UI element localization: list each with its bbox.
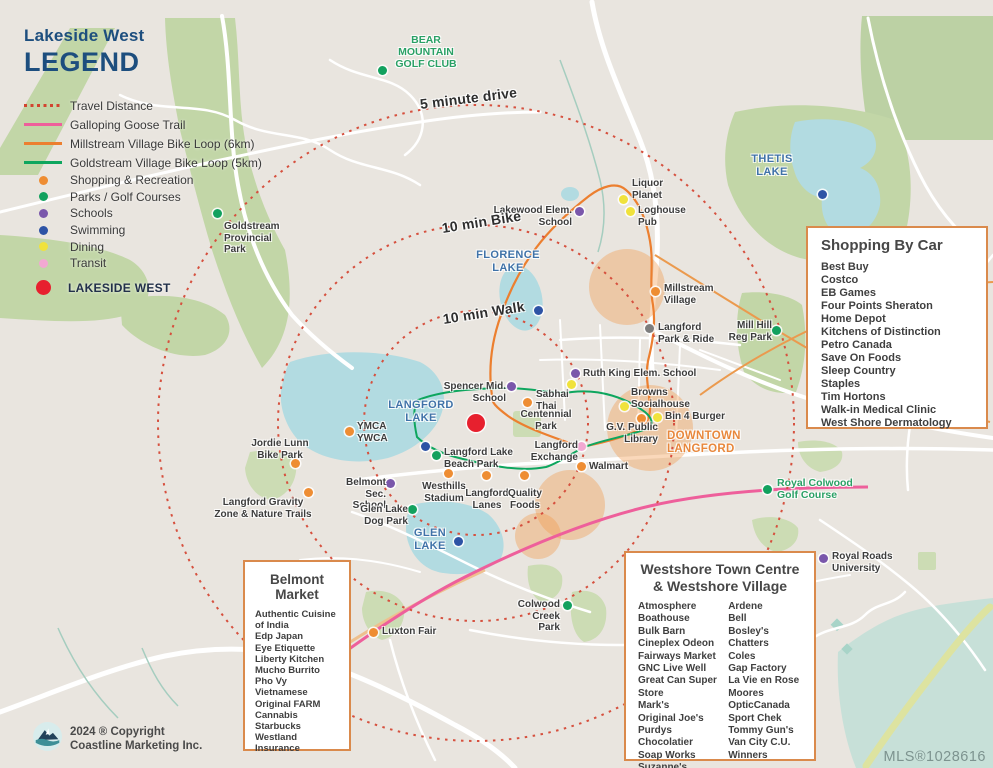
langford-lanes-label: Langford Lanes	[464, 488, 510, 511]
thetis-lake-dot	[818, 190, 827, 199]
jordie-lunn-bike-park-label: Jordie Lunn Bike Park	[250, 438, 310, 461]
five-minute-drive-label: 5 minute drive	[419, 83, 530, 112]
luxton-fair-dot	[369, 628, 378, 637]
mls-number: MLS®1028616	[884, 749, 986, 765]
legend-dot-item: Swimming	[24, 222, 264, 239]
shopping-by-car-list: Best BuyCostcoEB GamesFour Points Sherat…	[821, 261, 973, 430]
langford-exchange-label: Langford Exchange	[528, 440, 578, 463]
list-item: Eye Etiquette	[253, 643, 341, 654]
legend-line-label: Goldstream Village Bike Loop (5km)	[70, 156, 262, 170]
list-item: Save On Foods	[821, 352, 973, 365]
colwood-creek-park-dot	[563, 601, 572, 610]
legend-category-dot	[39, 192, 48, 201]
ruth-king-elem-school-label: Ruth King Elem. School	[583, 368, 703, 380]
glen-lake-label: GLEN LAKE	[408, 527, 452, 552]
bear-mountain-golf-club-label: BEAR MOUNTAIN GOLF CLUB	[393, 34, 459, 70]
copyright-line1: 2024 ® Copyright	[70, 725, 202, 739]
browns-socialhouse-label: Browns Socialhouse	[631, 387, 693, 410]
list-item: Gap Factory	[728, 663, 802, 675]
langford-lanes-dot	[482, 471, 491, 480]
glen-lake-dot	[454, 537, 463, 546]
coastline-logo-icon	[33, 722, 62, 756]
royal-colwood-golf-course-dot	[763, 485, 772, 494]
langford-gravity-zone-label: Langford Gravity Zone & Nature Trails	[212, 497, 314, 520]
shopping-by-car-title: Shopping By Car	[821, 237, 973, 254]
legend-line-item: Goldstream Village Bike Loop (5km)	[24, 153, 264, 172]
thetis-lake-label: THETIS LAKE	[742, 153, 802, 178]
legend-line-item: Millstream Village Bike Loop (6km)	[24, 134, 264, 153]
langford-lake-beach-park-dot	[432, 451, 441, 460]
legend-dot-item: Parks / Golf Courses	[24, 189, 264, 206]
list-item: Edp Japan	[253, 631, 341, 642]
ymca-ywca-dot	[345, 427, 354, 436]
list-item: Sleep Country	[821, 365, 973, 378]
list-item: Pho Vy	[253, 676, 341, 687]
legend-line-items: Travel Distance Galloping Goose Trail Mi…	[24, 96, 264, 172]
list-item: Coles	[728, 651, 802, 663]
map-canvas: BEAR MOUNTAIN GOLF CLUBGoldstream Provin…	[0, 0, 993, 768]
list-item: Original Joe's	[638, 713, 728, 725]
legend-title: Lakeside West	[24, 26, 264, 46]
legend-category-dot	[39, 226, 48, 235]
legend-lakeside-item: LAKESIDE WEST	[24, 276, 264, 300]
legend-dot-item: Dining	[24, 238, 264, 255]
lakeside-west-legend-label: LAKESIDE WEST	[68, 281, 171, 295]
list-item: Westland Insurance	[253, 732, 341, 754]
westhills-stadium-dot	[444, 469, 453, 478]
westshore-box: Westshore Town Centre & Westshore Villag…	[624, 551, 816, 761]
royal-roads-university-label: Royal Roads University	[832, 551, 894, 574]
list-item: Sport Chek	[728, 713, 802, 725]
legend-line-item: Galloping Goose Trail	[24, 115, 264, 134]
list-item: Vietnamese	[253, 687, 341, 698]
westshore-title: Westshore Town Centre & Westshore Villag…	[638, 561, 802, 595]
belmont-sec-school-dot	[386, 479, 395, 488]
legend-category-dot	[39, 259, 48, 268]
copyright-line2: Coastline Marketing Inc.	[70, 739, 202, 753]
legend-dot-label: Swimming	[70, 223, 125, 237]
belmont-market-list: Authentic Cuisineof IndiaEdp JapanEye Et…	[253, 609, 341, 755]
bin-4-burger-dot	[653, 413, 662, 422]
list-item: Fairways Market	[638, 651, 728, 663]
belmont-market-title: Belmont Market	[257, 572, 337, 602]
list-item: Authentic Cuisine	[253, 609, 341, 620]
millstream-village-label: Millstream Village	[664, 283, 726, 306]
list-item: Tommy Gun's	[728, 725, 802, 737]
list-item: OpticCanada	[728, 700, 802, 712]
legend-dot-label: Transit	[70, 256, 106, 270]
bin-4-burger-label: Bin 4 Burger	[665, 411, 733, 423]
list-item: Tim Hortons	[821, 391, 973, 404]
centennial-park-label: Centennial Park	[520, 409, 572, 432]
ten-min-walk-label: 10 min Walk	[442, 296, 538, 327]
list-item: Winners	[728, 750, 802, 762]
legend-heading: LEGEND	[24, 47, 264, 78]
quality-foods-dot	[520, 471, 529, 480]
downtown-langford-label: DOWNTOWN LANGFORD	[667, 430, 747, 456]
mill-hill-reg-park-dot	[772, 326, 781, 335]
list-item: La Vie en Rose	[728, 675, 802, 687]
shopping-by-car-box: Shopping By Car Best BuyCostcoEB GamesFo…	[806, 226, 988, 429]
list-item: Purdys Chocolatier	[638, 725, 728, 750]
walmart-dot	[577, 462, 586, 471]
list-item: Best Buy	[821, 261, 973, 274]
copyright-text: 2024 ® Copyright Coastline Marketing Inc…	[70, 725, 202, 753]
list-item: Liberty Kitchen	[253, 654, 341, 665]
florence-lake-label: FLORENCE LAKE	[468, 249, 548, 274]
legend-line-swatch	[24, 161, 62, 164]
legend-line-swatch	[24, 123, 62, 126]
luxton-fair-label: Luxton Fair	[382, 626, 442, 638]
legend-line-label: Millstream Village Bike Loop (6km)	[70, 137, 255, 151]
list-item: Ardene	[728, 601, 802, 613]
ymca-ywca-label: YMCA YWCA	[357, 421, 397, 444]
legend-dot-item: Schools	[24, 205, 264, 222]
lakewood-elem-school-dot	[575, 207, 584, 216]
list-item: Bosley's	[728, 626, 802, 638]
legend-dot-label: Shopping & Recreation	[70, 173, 193, 187]
legend-dot-item: Shopping & Recreation	[24, 172, 264, 189]
centennial-park-dot	[523, 398, 532, 407]
loghouse-pub-label: Loghouse Pub	[638, 205, 690, 228]
legend-line-swatch	[24, 142, 62, 145]
sabhai-thai-dot	[567, 380, 576, 389]
royal-colwood-golf-course-label: Royal Colwood Golf Course	[777, 477, 859, 501]
list-item: Moores	[728, 688, 802, 700]
legend-category-dot	[39, 209, 48, 218]
copyright: 2024 ® Copyright Coastline Marketing Inc…	[33, 722, 202, 756]
list-item: West Shore Dermatology	[821, 417, 973, 430]
list-item: Cineplex Odeon	[638, 638, 728, 650]
legend-line-swatch	[24, 104, 62, 107]
list-item: Great Can Super Store	[638, 675, 728, 700]
browns-socialhouse-dot	[620, 402, 629, 411]
list-item: Staples	[821, 378, 973, 391]
langford-gravity-zone-dot	[304, 488, 313, 497]
legend-dot-item: Transit	[24, 255, 264, 272]
legend-line-label: Travel Distance	[70, 99, 153, 113]
quality-foods-label: Quality Foods	[505, 488, 545, 511]
legend-category-dot	[39, 176, 48, 185]
list-item: Costco	[821, 274, 973, 287]
legend-dot-label: Dining	[70, 240, 104, 254]
list-item: Van City C.U.	[728, 737, 802, 749]
list-item: Mucho Burrito	[253, 665, 341, 676]
belmont-market-box: Belmont Market Authentic Cuisineof India…	[243, 560, 351, 751]
list-item: EB Games	[821, 287, 973, 300]
legend-line-label: Galloping Goose Trail	[70, 118, 185, 132]
loghouse-pub-dot	[626, 207, 635, 216]
westshore-list-col1: AtmosphereBoathouseBulk BarnCineplex Ode…	[638, 601, 728, 768]
legend-category-dot	[39, 242, 48, 251]
list-item: Soap Works	[638, 750, 728, 762]
list-item: Starbucks	[253, 721, 341, 732]
list-item: Kitchens of Distinction	[821, 326, 973, 339]
list-item: Bulk Barn	[638, 626, 728, 638]
royal-roads-university-dot	[819, 554, 828, 563]
glen-lake-dog-park-label: Glen Lake Dog Park	[356, 504, 408, 527]
bear-mountain-golf-club-dot	[378, 66, 387, 75]
lakeside-west-legend-dot	[36, 280, 51, 295]
list-item: Original FARM	[253, 699, 341, 710]
glen-lake-dog-park-dot	[408, 505, 417, 514]
legend-line-item: Travel Distance	[24, 96, 264, 115]
liquor-planet-dot	[619, 195, 628, 204]
list-item: Four Points Sheraton	[821, 300, 973, 313]
list-item: Cannabis	[253, 710, 341, 721]
legend-dot-label: Parks / Golf Courses	[70, 190, 181, 204]
langford-lake-beach-park-label: Langford Lake Beach Park	[444, 447, 514, 470]
gv-public-library-label: G.V. Public Library	[600, 422, 658, 445]
list-item: Walk-in Medical Clinic	[821, 404, 973, 417]
list-item: Petro Canada	[821, 339, 973, 352]
walmart-label: Walmart	[589, 461, 639, 473]
westshore-list-col2: ArdeneBellBosley'sChattersColesGap Facto…	[728, 601, 802, 768]
list-item: of India	[253, 620, 341, 631]
millstream-village-dot	[651, 287, 660, 296]
list-item: Suzanne's	[638, 762, 728, 768]
legend-dot-items: Shopping & Recreation Parks / Golf Cours…	[24, 172, 264, 272]
beach-park-swimming-dot	[421, 442, 430, 451]
mill-hill-reg-park-label: Mill Hill Reg Park	[728, 320, 772, 343]
liquor-planet-label: Liquor Planet	[632, 178, 677, 201]
list-item: GNC Live Well	[638, 663, 728, 675]
colwood-creek-park-label: Colwood Creek Park	[508, 599, 560, 634]
list-item: Mark's	[638, 700, 728, 712]
spencer-mid-school-dot	[507, 382, 516, 391]
lakeside-west-marker-dot	[467, 414, 485, 432]
list-item: Atmosphere	[638, 601, 728, 613]
list-item: Bell	[728, 613, 802, 625]
langford-park-and-ride-dot	[645, 324, 654, 333]
legend: Lakeside West LEGEND Travel Distance Gal…	[24, 26, 264, 300]
list-item: Home Depot	[821, 313, 973, 326]
langford-park-and-ride-label: Langford Park & Ride	[658, 322, 722, 345]
list-item: Chatters	[728, 638, 802, 650]
legend-dot-label: Schools	[70, 206, 113, 220]
list-item: Boathouse	[638, 613, 728, 625]
westhills-stadium-label: Westhills Stadium	[420, 481, 468, 504]
ruth-king-elem-school-dot	[571, 369, 580, 378]
